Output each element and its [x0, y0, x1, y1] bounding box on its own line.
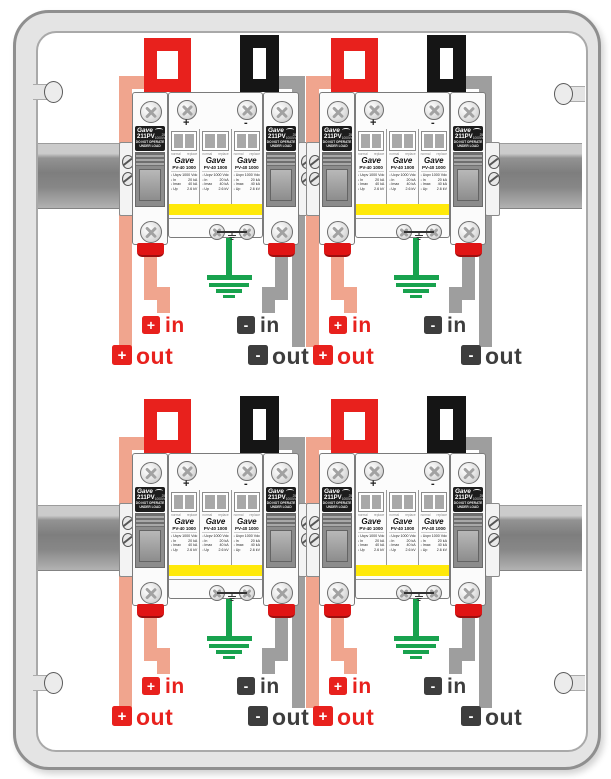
spd-module: normalreplace Gave PV-40 1000 Ucpv 1000 …: [419, 490, 449, 565]
model-label: PV-40 1000: [202, 526, 228, 533]
status-indicator-window: [421, 131, 447, 151]
positive-out-label: out: [136, 704, 173, 731]
spd-module: normalreplace Gave PV-40 1000 Ucpv 1000 …: [200, 490, 230, 565]
ground-wire: [413, 238, 419, 278]
spd-modules: normalreplace Gave PV-40 1000 Ucpv 1000 …: [169, 129, 262, 204]
warning-text: DO NOT OPERATEUNDER LOAD: [266, 141, 296, 148]
spec-row: Up 2.6 kV: [389, 187, 415, 192]
ground-wire: [226, 599, 232, 639]
negative-in-badge: -: [424, 677, 442, 695]
brand-logo: Gave: [389, 517, 415, 526]
fuse-carrier-handle: [322, 152, 352, 207]
status-indicator-window: [389, 492, 415, 512]
fuse-output-terminal: [268, 604, 295, 618]
negative-in-label: in: [260, 314, 280, 338]
torx-screw: [458, 101, 480, 123]
torx-screw: [271, 462, 293, 484]
earth-symbol-small-icon: [227, 232, 237, 241]
spec-row: Up 2.6 kV: [358, 548, 384, 553]
brand-logo: Gave: [453, 487, 483, 495]
fuse-holder-label: Gave 211PV 25A1000Vdc DO NOT OPERATEUNDE…: [322, 487, 352, 512]
spd-module: normalreplace Gave PV-40 1000 Ucpv 1000 …: [169, 129, 199, 204]
positive-out-label: out: [136, 343, 173, 370]
model-label: PV-40 1000: [171, 165, 197, 172]
brand-logo: Gave: [421, 156, 447, 165]
positive-in-label: in: [165, 314, 185, 338]
torx-screw: [327, 101, 349, 123]
fuse-holder-label: Gave 211PV 25A1000Vdc DO NOT OPERATEUNDE…: [453, 126, 483, 151]
minus-terminal-sign: -: [244, 118, 248, 128]
spd-module: normalreplace Gave PV-40 1000 Ucpv 1000 …: [169, 490, 199, 565]
earth-symbol-icon: [207, 275, 252, 280]
spec-row: Up 2.6 kV: [171, 548, 197, 553]
model-label: PV-40 1000: [421, 526, 447, 533]
brand-logo: Gave: [135, 487, 165, 495]
torx-screw: [271, 101, 293, 123]
positive-jumper-wire: [331, 38, 378, 92]
mounting-hole: [554, 83, 573, 105]
spd-module: normalreplace Gave PV-40 1000 Ucpv 1000 …: [387, 129, 417, 204]
brand-logo: Gave: [322, 487, 352, 495]
brand-logo: Gave: [202, 517, 228, 526]
warning-text: DO NOT OPERATEUNDER LOAD: [266, 502, 296, 509]
torx-screw: [458, 221, 480, 243]
unit-top-left: Gave 211PV 25A1000Vdc DO NOT OPERATEUNDE…: [119, 35, 319, 380]
status-indicator-window: [358, 131, 384, 151]
minus-terminal-sign: -: [431, 118, 435, 128]
ground-wire: [226, 238, 232, 278]
warning-text: DO NOT OPERATEUNDER LOAD: [135, 502, 165, 509]
din-end-bracket: [485, 503, 500, 577]
negative-in-label: in: [447, 675, 467, 699]
spd-top-terminals: + -: [169, 93, 262, 130]
spd-module: normalreplace Gave PV-40 1000 Ucpv 1000 …: [419, 129, 449, 204]
model-label: PV-40 1000: [389, 526, 415, 533]
slotted-screw: [488, 155, 500, 169]
fuse-carrier-handle: [322, 513, 352, 568]
warning-text: DO NOT OPERATEUNDER LOAD: [322, 502, 352, 509]
negative-jumper-wire: [427, 396, 466, 453]
fuse-output-terminal: [137, 243, 164, 257]
negative-out-label: out: [485, 704, 522, 731]
positive-in-label: in: [352, 314, 372, 338]
torx-screw: [458, 582, 480, 604]
fuse-holder-211pv: Gave 211PV 25A1000Vdc DO NOT OPERATEUNDE…: [450, 453, 486, 606]
negative-in-badge: -: [237, 316, 255, 334]
fuse-holder-label: Gave 211PV 25A1000Vdc DO NOT OPERATEUNDE…: [266, 126, 296, 151]
earth-symbol-small-icon: [414, 593, 424, 602]
positive-in-wire: [157, 648, 170, 674]
model-label: PV-40 1000: [202, 165, 228, 172]
negative-out-badge: -: [461, 345, 481, 365]
ground-wire: [413, 599, 419, 639]
negative-in-wire: [262, 648, 275, 674]
negative-jumper-wire: [240, 396, 279, 453]
yellow-band: [356, 204, 449, 215]
spec-row: Up 2.6 kV: [234, 187, 260, 192]
plus-terminal-sign: +: [183, 479, 189, 489]
spec-table: Ucpv 1000 Vdc In 20 kA Imax 40 kA Up 2.6…: [421, 534, 447, 552]
spd-ground-terminals: [356, 218, 449, 239]
negative-out-label: out: [272, 343, 309, 370]
spec-row: Up 2.6 kV: [202, 187, 228, 192]
fuse-holder-label: Gave 211PV 25A1000Vdc DO NOT OPERATEUNDE…: [135, 487, 165, 512]
brand-logo: Gave: [135, 126, 165, 134]
brand-swoosh-icon: [473, 128, 481, 132]
spd-module: normalreplace Gave PV-40 1000 Ucpv 1000 …: [356, 490, 386, 565]
plus-terminal-sign: +: [183, 118, 189, 128]
spec-table: Ucpv 1000 Vdc In 20 kA Imax 40 kA Up 2.6…: [358, 173, 384, 191]
negative-out-badge: -: [248, 706, 268, 726]
status-indicator-window: [202, 492, 228, 512]
torx-screw: [327, 462, 349, 484]
fuse-holder-label: Gave 211PV 25A1000Vdc DO NOT OPERATEUNDE…: [135, 126, 165, 151]
brand-swoosh-icon: [342, 489, 350, 493]
earth-symbol-icon: [207, 636, 252, 641]
status-indicator-window: [389, 131, 415, 151]
brand-logo: Gave: [322, 126, 352, 134]
spec-row: Up 2.6 kV: [202, 548, 228, 553]
earth-symbol-small-icon: [414, 232, 424, 241]
positive-in-badge: +: [329, 677, 347, 695]
surge-protector-pv40: + - normalreplace Gave PV-40 1000 Ucpv 1…: [168, 453, 263, 599]
negative-in-wire: [449, 648, 462, 674]
torx-screw: [271, 582, 293, 604]
earth-symbol-icon: [410, 295, 422, 298]
positive-out-label: out: [337, 704, 374, 731]
spec-table: Ucpv 1000 Vdc In 20 kA Imax 40 kA Up 2.6…: [171, 534, 197, 552]
fuse-holder-211pv: Gave 211PV 25A1000Vdc DO NOT OPERATEUNDE…: [263, 453, 299, 606]
negative-out-label: out: [272, 704, 309, 731]
yellow-band: [169, 204, 262, 215]
fuse-holder-label: Gave 211PV 25A1000Vdc DO NOT OPERATEUNDE…: [453, 487, 483, 512]
slotted-screw: [488, 516, 500, 530]
brand-logo: Gave: [358, 156, 384, 165]
fuse-carrier-handle: [453, 152, 483, 207]
negative-jumper-wire: [427, 35, 466, 92]
fuse-holder-211pv: Gave 211PV 25A1000Vdc DO NOT OPERATEUNDE…: [450, 92, 486, 245]
brand-swoosh-icon: [286, 128, 294, 132]
negative-in-badge: -: [424, 316, 442, 334]
status-indicator-window: [234, 492, 260, 512]
spec-row: Up 2.6 kV: [358, 187, 384, 192]
brand-logo: Gave: [389, 156, 415, 165]
slotted-screw: [488, 533, 500, 547]
earth-symbol-icon: [394, 636, 439, 641]
positive-out-label: out: [337, 343, 374, 370]
brand-logo: Gave: [453, 126, 483, 134]
earth-symbol-icon: [223, 656, 235, 659]
unit-top-right: Gave 211PV 25A1000Vdc DO NOT OPERATEUNDE…: [306, 35, 506, 380]
fuse-holder-211pv: Gave 211PV 25A1000Vdc DO NOT OPERATEUNDE…: [132, 92, 168, 245]
spd-module: normalreplace Gave PV-40 1000 Ucpv 1000 …: [387, 490, 417, 565]
fuse-output-terminal: [324, 604, 351, 618]
brand-logo: Gave: [266, 487, 296, 495]
status-indicator-window: [171, 492, 197, 512]
fuse-output-terminal: [324, 243, 351, 257]
earth-symbol-icon: [394, 275, 439, 280]
spd-ground-terminals: [356, 579, 449, 600]
earth-symbol-icon: [403, 289, 429, 293]
spd-ground-terminals: [169, 218, 262, 239]
fuse-carrier-handle: [135, 152, 165, 207]
spec-table: Ucpv 1000 Vdc In 20 kA Imax 40 kA Up 2.6…: [358, 534, 384, 552]
fuse-output-terminal: [455, 604, 482, 618]
model-label: PV-40 1000: [421, 165, 447, 172]
earth-symbol-icon: [209, 644, 249, 648]
negative-out-badge: -: [461, 706, 481, 726]
positive-out-badge: +: [313, 345, 333, 365]
unit-bottom-left: Gave 211PV 25A1000Vdc DO NOT OPERATEUNDE…: [119, 396, 319, 741]
spec-table: Ucpv 1000 Vdc In 20 kA Imax 40 kA Up 2.6…: [202, 173, 228, 191]
yellow-band: [356, 565, 449, 576]
mounting-hole: [44, 672, 63, 694]
earth-symbol-icon: [396, 644, 436, 648]
brand-swoosh-icon: [155, 128, 163, 132]
negative-in-wire: [262, 287, 275, 313]
positive-out-badge: +: [112, 345, 132, 365]
warning-text: DO NOT OPERATEUNDER LOAD: [453, 502, 483, 509]
torx-screw: [140, 462, 162, 484]
spec-table: Ucpv 1000 Vdc In 20 kA Imax 40 kA Up 2.6…: [234, 534, 260, 552]
fuse-holder-label: Gave 211PV 25A1000Vdc DO NOT OPERATEUNDE…: [266, 487, 296, 512]
brand-swoosh-icon: [473, 489, 481, 493]
brand-logo: Gave: [234, 156, 260, 165]
torx-screw: [327, 221, 349, 243]
spd-ground-terminals: [169, 579, 262, 600]
brand-logo: Gave: [266, 126, 296, 134]
earth-symbol-icon: [396, 283, 436, 287]
unit-bottom-right: Gave 211PV 25A1000Vdc DO NOT OPERATEUNDE…: [306, 396, 506, 741]
fuse-holder-211pv: Gave 211PV 25A1000Vdc DO NOT OPERATEUNDE…: [263, 92, 299, 245]
brand-logo: Gave: [171, 517, 197, 526]
spec-row: Up 2.6 kV: [171, 187, 197, 192]
warning-text: DO NOT OPERATEUNDER LOAD: [453, 141, 483, 148]
spd-module: normalreplace Gave PV-40 1000 Ucpv 1000 …: [232, 490, 262, 565]
spd-top-terminals: + -: [356, 93, 449, 130]
positive-jumper-wire: [144, 399, 191, 453]
fuse-carrier-handle: [453, 513, 483, 568]
positive-in-badge: +: [142, 677, 160, 695]
mounting-hole: [554, 672, 573, 694]
spec-table: Ucpv 1000 Vdc In 20 kA Imax 40 kA Up 2.6…: [171, 173, 197, 191]
plus-terminal-sign: +: [370, 118, 376, 128]
positive-in-label: in: [165, 675, 185, 699]
fuse-carrier-handle: [135, 513, 165, 568]
positive-jumper-wire: [144, 38, 191, 92]
spec-row: Up 2.6 kV: [421, 187, 447, 192]
earth-symbol-icon: [216, 650, 242, 654]
spd-module: normalreplace Gave PV-40 1000 Ucpv 1000 …: [356, 129, 386, 204]
spd-modules: normalreplace Gave PV-40 1000 Ucpv 1000 …: [356, 490, 449, 565]
brand-logo: Gave: [234, 517, 260, 526]
positive-jumper-wire: [331, 399, 378, 453]
warning-text: DO NOT OPERATEUNDER LOAD: [322, 141, 352, 148]
brand-logo: Gave: [358, 517, 384, 526]
fuse-output-terminal: [268, 243, 295, 257]
model-label: PV-40 1000: [389, 165, 415, 172]
plus-terminal-sign: +: [370, 479, 376, 489]
positive-in-wire: [344, 648, 357, 674]
negative-in-badge: -: [237, 677, 255, 695]
status-indicator-window: [171, 131, 197, 151]
warning-text: DO NOT OPERATEUNDER LOAD: [135, 141, 165, 148]
fuse-output-terminal: [137, 604, 164, 618]
brand-swoosh-icon: [342, 128, 350, 132]
pv-combiner-box-diagram: Gave 211PV 25A1000Vdc DO NOT OPERATEUNDE…: [0, 0, 611, 779]
fuse-holder-211pv: Gave 211PV 25A1000Vdc DO NOT OPERATEUNDE…: [132, 453, 168, 606]
earth-symbol-icon: [223, 295, 235, 298]
brand-logo: Gave: [421, 517, 447, 526]
status-indicator-window: [358, 492, 384, 512]
status-indicator-window: [421, 492, 447, 512]
spd-modules: normalreplace Gave PV-40 1000 Ucpv 1000 …: [169, 490, 262, 565]
earth-symbol-icon: [410, 656, 422, 659]
positive-in-wire: [344, 287, 357, 313]
earth-symbol-icon: [216, 289, 242, 293]
torx-screw: [140, 101, 162, 123]
fuse-carrier-handle: [266, 513, 296, 568]
model-label: PV-40 1000: [358, 165, 384, 172]
positive-in-label: in: [352, 675, 372, 699]
positive-out-badge: +: [313, 706, 333, 726]
earth-symbol-small-icon: [227, 593, 237, 602]
model-label: PV-40 1000: [171, 526, 197, 533]
torx-screw: [140, 221, 162, 243]
minus-terminal-sign: -: [244, 479, 248, 489]
fuse-output-terminal: [455, 243, 482, 257]
fuse-carrier-handle: [266, 152, 296, 207]
positive-in-badge: +: [329, 316, 347, 334]
spec-table: Ucpv 1000 Vdc In 20 kA Imax 40 kA Up 2.6…: [421, 173, 447, 191]
brand-swoosh-icon: [286, 489, 294, 493]
spec-row: Up 2.6 kV: [234, 548, 260, 553]
status-indicator-window: [202, 131, 228, 151]
negative-in-wire: [449, 287, 462, 313]
spec-table: Ucpv 1000 Vdc In 20 kA Imax 40 kA Up 2.6…: [389, 534, 415, 552]
spd-module: normalreplace Gave PV-40 1000 Ucpv 1000 …: [200, 129, 230, 204]
torx-screw: [327, 582, 349, 604]
torx-screw: [458, 462, 480, 484]
fuse-holder-211pv: Gave 211PV 25A1000Vdc DO NOT OPERATEUNDE…: [319, 453, 355, 606]
surge-protector-pv40: + - normalreplace Gave PV-40 1000 Ucpv 1…: [355, 92, 450, 238]
earth-symbol-icon: [209, 283, 249, 287]
status-indicator-window: [234, 131, 260, 151]
model-label: PV-40 1000: [234, 526, 260, 533]
minus-terminal-sign: -: [431, 479, 435, 489]
negative-in-label: in: [260, 675, 280, 699]
negative-jumper-wire: [240, 35, 279, 92]
brand-logo: Gave: [202, 156, 228, 165]
brand-logo: Gave: [171, 156, 197, 165]
torx-screw: [271, 221, 293, 243]
negative-out-label: out: [485, 343, 522, 370]
spd-top-terminals: + -: [356, 454, 449, 491]
positive-in-wire: [157, 287, 170, 313]
spec-table: Ucpv 1000 Vdc In 20 kA Imax 40 kA Up 2.6…: [234, 173, 260, 191]
negative-out-badge: -: [248, 345, 268, 365]
brand-swoosh-icon: [155, 489, 163, 493]
positive-in-badge: +: [142, 316, 160, 334]
positive-out-badge: +: [112, 706, 132, 726]
slotted-screw: [488, 172, 500, 186]
spec-table: Ucpv 1000 Vdc In 20 kA Imax 40 kA Up 2.6…: [389, 173, 415, 191]
spec-table: Ucpv 1000 Vdc In 20 kA Imax 40 kA Up 2.6…: [202, 534, 228, 552]
fuse-holder-211pv: Gave 211PV 25A1000Vdc DO NOT OPERATEUNDE…: [319, 92, 355, 245]
spec-row: Up 2.6 kV: [421, 548, 447, 553]
earth-symbol-icon: [403, 650, 429, 654]
surge-protector-pv40: + - normalreplace Gave PV-40 1000 Ucpv 1…: [168, 92, 263, 238]
spd-top-terminals: + -: [169, 454, 262, 491]
model-label: PV-40 1000: [234, 165, 260, 172]
spd-module: normalreplace Gave PV-40 1000 Ucpv 1000 …: [232, 129, 262, 204]
torx-screw: [140, 582, 162, 604]
yellow-band: [169, 565, 262, 576]
fuse-holder-label: Gave 211PV 25A1000Vdc DO NOT OPERATEUNDE…: [322, 126, 352, 151]
spec-row: Up 2.6 kV: [389, 548, 415, 553]
din-end-bracket: [485, 142, 500, 216]
negative-in-label: in: [447, 314, 467, 338]
model-label: PV-40 1000: [358, 526, 384, 533]
mounting-hole: [44, 81, 63, 103]
surge-protector-pv40: + - normalreplace Gave PV-40 1000 Ucpv 1…: [355, 453, 450, 599]
spd-modules: normalreplace Gave PV-40 1000 Ucpv 1000 …: [356, 129, 449, 204]
